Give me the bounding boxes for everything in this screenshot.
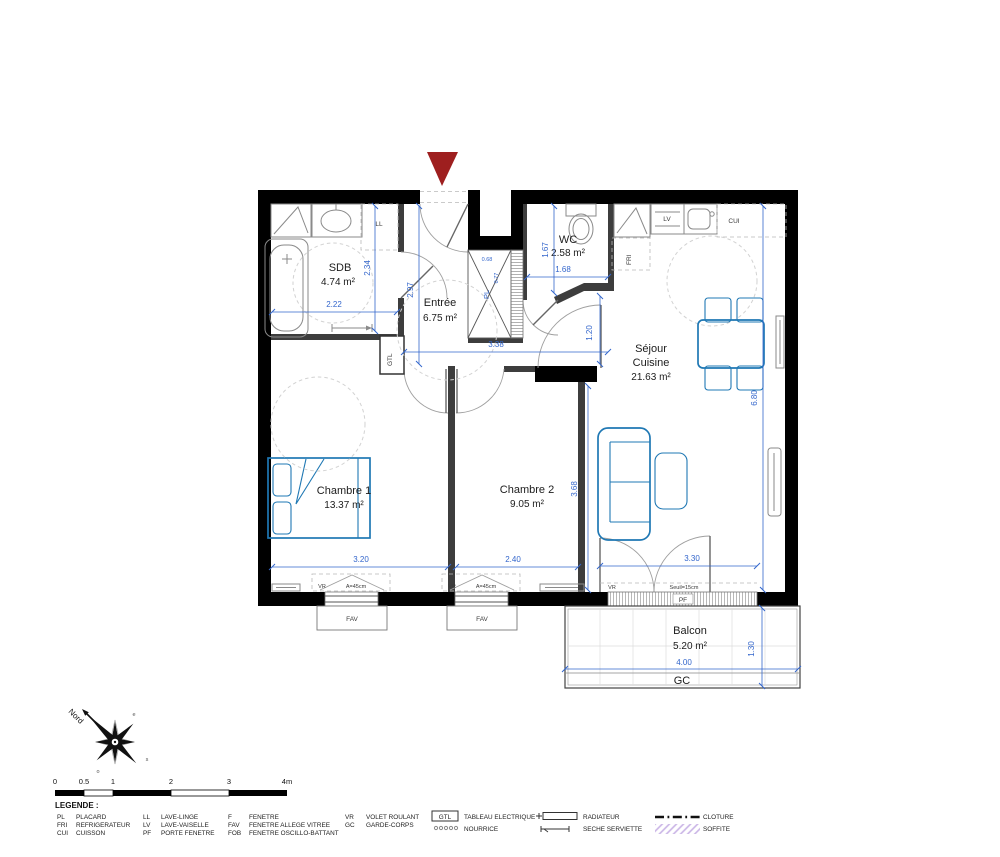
legend-seche-serviette-symbol: [541, 826, 569, 832]
svg-text:2.97: 2.97: [406, 282, 415, 298]
sejour-name-line1: Séjour: [635, 343, 667, 355]
sdb-name: SDB: [329, 262, 352, 274]
vr-label: VR: [318, 584, 326, 590]
sejour-area: 21.63 m²: [631, 372, 671, 383]
chambre2-area: 9.05 m²: [510, 499, 545, 510]
legend-label: SECHE SERVIETTE: [583, 826, 642, 833]
turning-circle: [667, 236, 757, 326]
corner-cabinet-icon: [271, 204, 311, 237]
legend-label: CLOTURE: [703, 814, 734, 821]
fri-label: FRI: [626, 254, 633, 265]
turning-circle: [271, 377, 365, 471]
entrance: [420, 152, 468, 252]
legend-label: NOURRICE: [464, 826, 498, 833]
radiator-icon: [272, 584, 300, 591]
legend-abbr: FRI: [57, 822, 68, 829]
legend-abbr: PF: [143, 830, 151, 837]
entrance-arrow-icon: [427, 152, 458, 186]
legend-abbr: FOB: [228, 830, 241, 837]
allege-label: A=45cm: [346, 584, 367, 590]
svg-text:3.20: 3.20: [353, 555, 369, 564]
scale-tick-1: 1: [111, 777, 115, 786]
entree-area: 6.75 m²: [423, 313, 458, 324]
exterior-walls: [258, 190, 798, 606]
dishwasher-icon: LV: [651, 204, 684, 234]
fav-label: FAV: [346, 616, 358, 623]
dim-chambre1-width: 3.20: [272, 555, 448, 567]
legend-abbr: LV: [143, 822, 151, 829]
legend-soffite-symbol: [655, 824, 700, 834]
svg-text:6.80: 6.80: [750, 390, 759, 406]
compass-rose: Nord e s o: [67, 707, 149, 775]
dim-chambre2-width: 2.40: [456, 555, 578, 567]
pf-label: PF: [679, 597, 687, 604]
interior-walls: [271, 204, 614, 592]
pl-label: PL: [482, 290, 491, 299]
svg-text:4.00: 4.00: [676, 658, 692, 667]
legend-label: FENETRE OSCILLO-BATTANT: [249, 830, 339, 837]
svg-text:2.40: 2.40: [505, 555, 521, 564]
wc-area: 2.58 m²: [551, 248, 586, 259]
kitchen-fixtures: LV CUI FRI: [612, 204, 786, 326]
pl-width-dim: 0.68: [482, 257, 493, 263]
bedroom1-furniture: [268, 377, 370, 538]
svg-text:2.34: 2.34: [363, 260, 372, 276]
dim-sdb-width: 2.22: [272, 300, 397, 312]
closet-pl: PL 0.68 0.77: [468, 250, 523, 338]
chambre1-area: 13.37 m²: [324, 500, 364, 511]
balcon-area: 5.20 m²: [673, 641, 708, 652]
scale-tick-2: 2: [169, 777, 173, 786]
sejour-name-line2: Cuisine: [633, 357, 670, 369]
scale-tick-3: 3: [227, 777, 231, 786]
south-letter: s: [146, 757, 149, 763]
fav-label: FAV: [476, 616, 488, 623]
legend-label: PLACARD: [76, 814, 107, 821]
dim-wc-width: 1.68: [527, 265, 608, 277]
ll-label: LL: [375, 221, 383, 228]
living-furniture: [598, 298, 784, 540]
dim-balcon-height: 1.30: [747, 608, 762, 686]
dining-table-icon: [698, 298, 764, 390]
electrical-board: GTL: [380, 336, 404, 374]
legend-label: REFRIGERATEUR: [76, 822, 131, 829]
legend-label: LAVE-LINGE: [161, 814, 198, 821]
legend-abbr: GC: [345, 822, 355, 829]
svg-text:3.30: 3.30: [684, 554, 700, 563]
legend-radiateur-symbol: [536, 813, 577, 820]
towel-rail-icon: [332, 324, 372, 332]
radiator-icon: [776, 316, 784, 368]
scale-tick-05: 0.5: [79, 777, 89, 786]
bathtub-icon: [265, 239, 308, 337]
legend-label: GARDE-CORPS: [366, 822, 414, 829]
wc-name: WC: [559, 234, 577, 246]
legend-label: FENETRE: [249, 814, 279, 821]
coffee-table-icon: [655, 453, 687, 509]
balcon-name: Balcon: [673, 625, 707, 637]
sink-icon: [684, 204, 717, 234]
svg-text:3.38: 3.38: [488, 340, 504, 349]
scale-tick-4m: 4m: [282, 777, 292, 786]
west-letter: o: [96, 769, 99, 775]
svg-text:1.30: 1.30: [747, 641, 756, 657]
legend-label: FENETRE ALLEGE VITREE: [249, 822, 330, 829]
pl-height-dim: 0.77: [494, 273, 500, 284]
legend-label: SOFFITE: [703, 826, 730, 833]
legend-abbr: VR: [345, 814, 354, 821]
legend-abbr: FAV: [228, 822, 240, 829]
svg-text:1.68: 1.68: [555, 265, 571, 274]
allege-label: A=45cm: [476, 584, 497, 590]
legend-label: PORTE FENETRE: [161, 830, 215, 837]
legend-label: TABLEAU ELECTRIQUE: [464, 814, 535, 821]
entree-name: Entrée: [424, 297, 456, 309]
east-letter: e: [132, 712, 135, 718]
svg-text:1.20: 1.20: [585, 325, 594, 341]
legend-label: LAVE-VAISELLE: [161, 822, 209, 829]
chambre2-name: Chambre 2: [500, 484, 554, 496]
dim-entree-height: 2.97: [406, 206, 419, 364]
vr-label: VR: [608, 585, 616, 591]
vr-label: VR: [448, 584, 456, 590]
gtl-label: GTL: [387, 353, 394, 366]
legend-title: LEGENDE :: [55, 801, 99, 810]
gc-label: GC: [674, 675, 691, 687]
scale-tick-0: 0: [53, 777, 57, 786]
seuil-label: Seuil=15cm: [670, 585, 699, 591]
svg-text:2.22: 2.22: [326, 300, 342, 309]
lv-label: LV: [663, 216, 671, 223]
legend-label: CUISSON: [76, 830, 106, 837]
floor-plan-svg: GTL PL 0.68 0.77 LV: [0, 0, 1000, 857]
legend-abbr: F: [228, 814, 232, 821]
svg-text:GTL: GTL: [439, 814, 452, 821]
cui-label: CUI: [728, 218, 739, 225]
floor-plan-page: GTL PL 0.68 0.77 LV: [0, 0, 1000, 857]
scale-bar: 0 0.5 1 2 3 4m: [53, 777, 292, 796]
washbasin-icon: [312, 204, 362, 237]
radiator-icon: [768, 448, 781, 516]
chambre1-name: Chambre 1: [317, 485, 371, 497]
legend-abbr: LL: [143, 814, 151, 821]
legend: LEGENDE : PL PLACARD FRI REFRIGERATEUR C…: [55, 801, 734, 837]
sofa-icon: [598, 428, 650, 540]
corner-cabinet-icon: [614, 204, 650, 237]
legend-abbr: PL: [57, 814, 65, 821]
svg-text:1.67: 1.67: [541, 242, 550, 258]
legend-label: VOLET ROULANT: [366, 814, 419, 821]
sdb-area: 4.74 m²: [321, 277, 356, 288]
legend-label: RADIATEUR: [583, 814, 620, 821]
legend-gtl-symbol: GTL: [432, 811, 458, 821]
radiator-icon: [540, 584, 584, 591]
legend-nourrice-symbol: [434, 826, 457, 829]
svg-text:3.68: 3.68: [570, 481, 579, 497]
cooktop-zone: [717, 204, 786, 237]
dim-pf-width: 3.30: [600, 554, 757, 566]
nourrice-strip: [511, 250, 523, 338]
legend-abbr: CUI: [57, 830, 68, 837]
bed-icon: [268, 458, 370, 538]
dim-sejour-height: 6.80: [750, 206, 763, 590]
